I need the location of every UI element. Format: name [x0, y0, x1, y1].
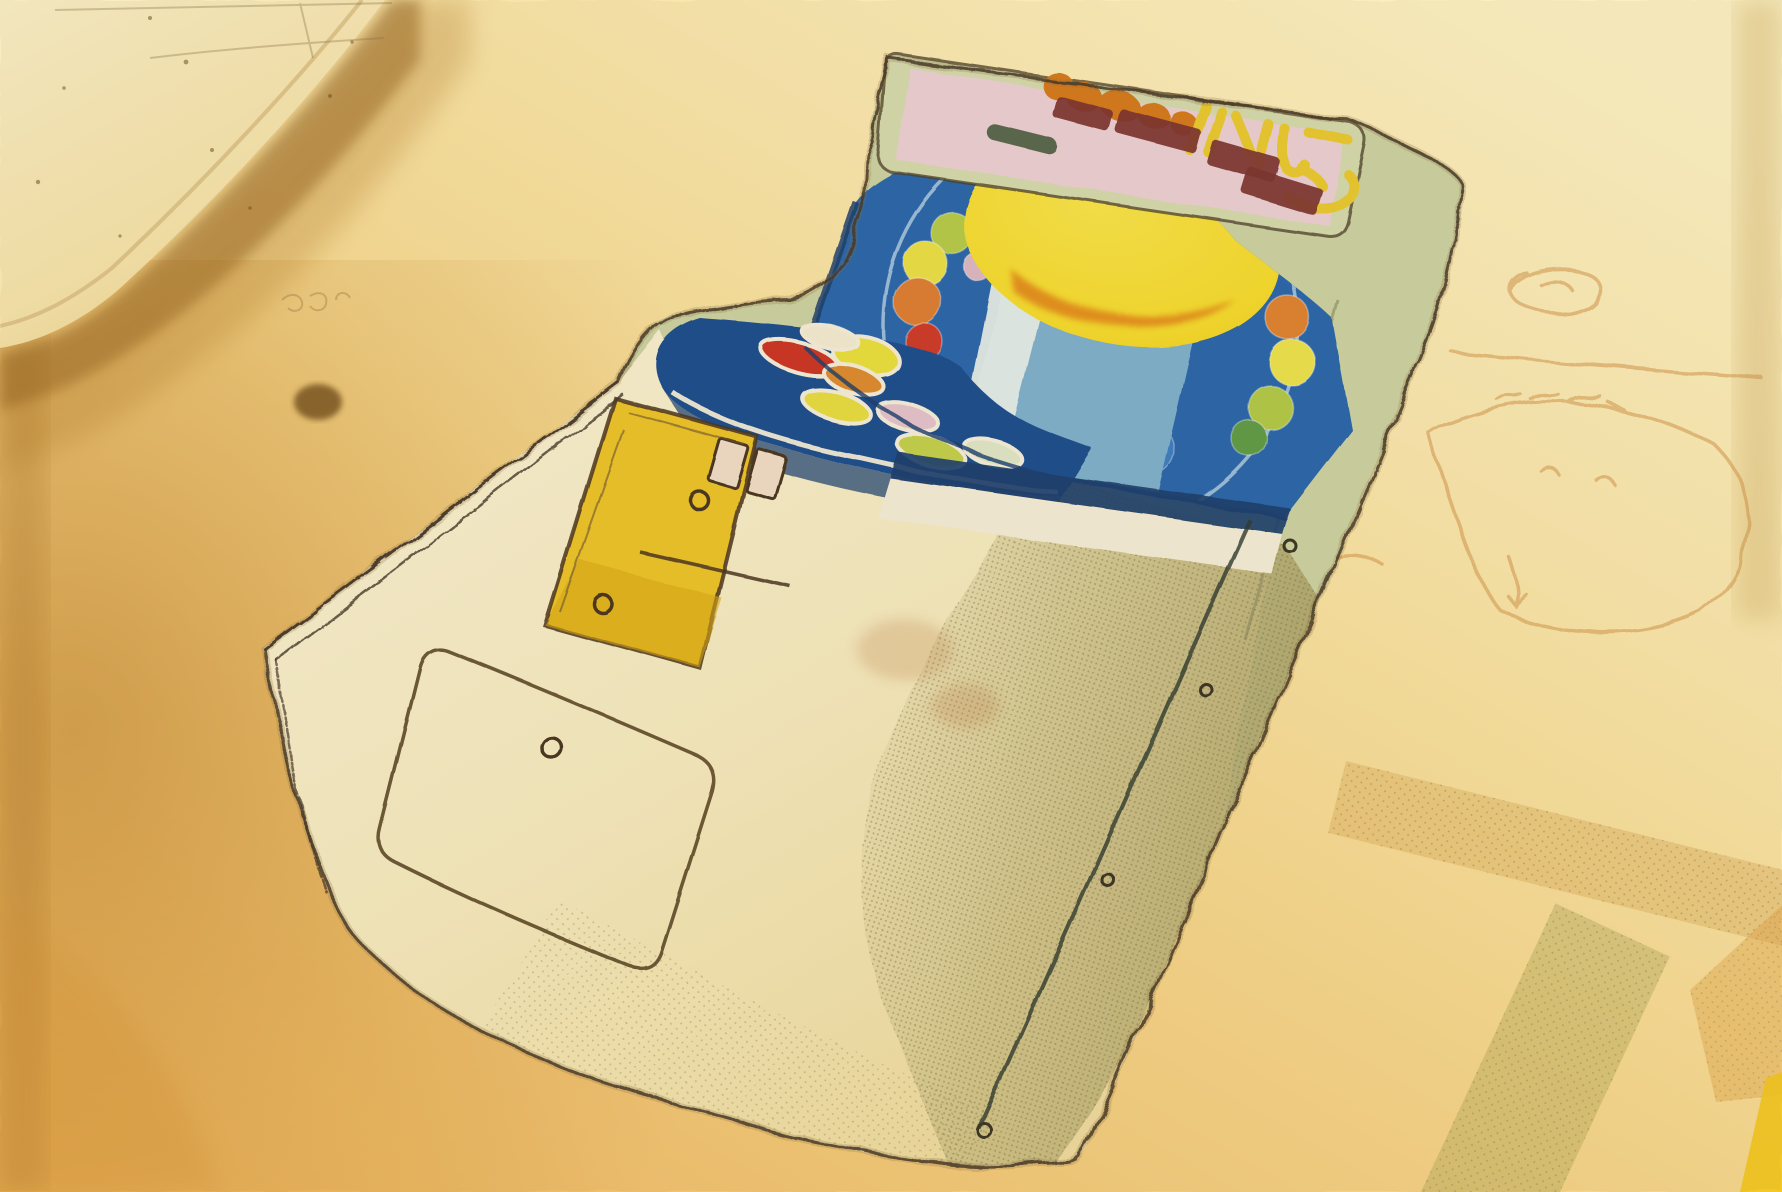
photo-of-sketch-page	[0, 0, 1782, 1192]
paper-grain	[0, 0, 1782, 1192]
